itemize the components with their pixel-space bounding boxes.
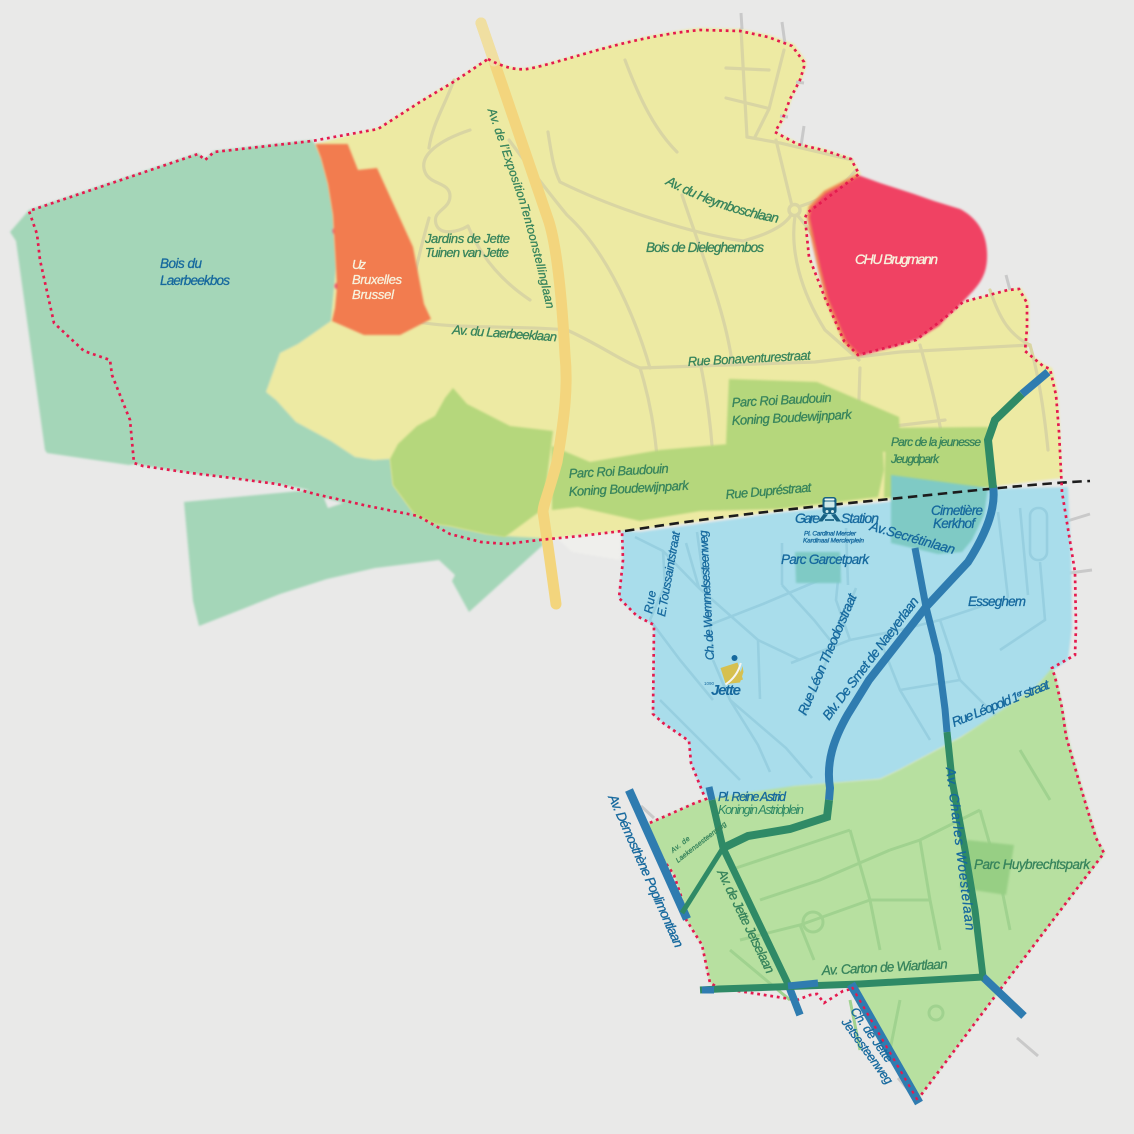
svg-text:Parc de la jeunesse: Parc de la jeunesse — [891, 435, 981, 449]
svg-text:Bois du: Bois du — [160, 256, 202, 271]
svg-text:Bruxelles: Bruxelles — [352, 272, 403, 287]
svg-text:Parc Garcetpark: Parc Garcetpark — [781, 552, 870, 567]
svg-text:Pl. Reine Astrid: Pl. Reine Astrid — [718, 790, 787, 804]
svg-text:Kerkhof: Kerkhof — [933, 516, 976, 531]
svg-text:Tuinen van Jette: Tuinen van Jette — [425, 245, 509, 260]
svg-text:Jardins de Jette: Jardins de Jette — [424, 231, 510, 246]
svg-text:Koningin Astridplein: Koningin Astridplein — [718, 803, 804, 817]
svg-text:1090: 1090 — [704, 681, 715, 686]
svg-text:Parc Huybrechtspark: Parc Huybrechtspark — [974, 857, 1091, 872]
svg-text:Jeugdpark: Jeugdpark — [890, 452, 940, 466]
svg-text:Bois de Dieleghembos: Bois de Dieleghembos — [646, 240, 764, 255]
svg-text:Pl. Cardinal Mercier: Pl. Cardinal Mercier — [804, 531, 857, 538]
svg-text:Kardinaal Mercierplein: Kardinaal Mercierplein — [803, 538, 864, 545]
svg-text:Uz: Uz — [352, 257, 367, 272]
svg-text:Jette: Jette — [711, 682, 741, 699]
svg-text:CHU Brugmann: CHU Brugmann — [855, 251, 938, 267]
svg-text:Brussel: Brussel — [352, 287, 395, 302]
svg-text:Laerbeekbos: Laerbeekbos — [160, 273, 230, 288]
svg-text:Esseghem: Esseghem — [968, 594, 1026, 609]
svg-text:Gare: Gare — [795, 510, 820, 526]
